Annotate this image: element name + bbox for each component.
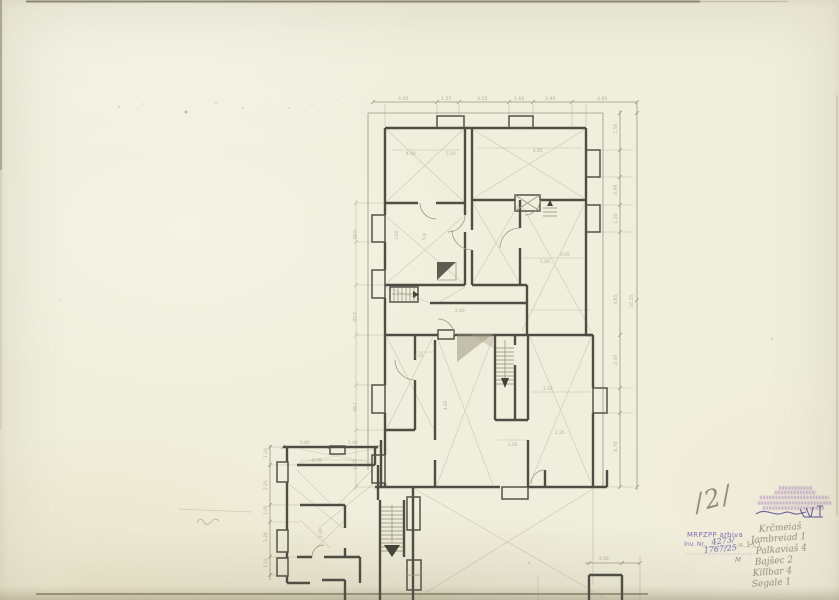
dim-label: 2.90 [613,185,619,195]
dim-label: 4.62 [443,400,449,410]
staircase-back [543,200,557,216]
dim-label: 2.35 [555,430,565,436]
archive-stamp-inv-label: Inv. Nr. [684,541,705,548]
staircase-small [390,287,419,302]
dim-label: 1.05 [508,442,518,448]
dim-label: 2.10 [351,312,357,322]
dim-label: 4.85 [597,96,607,102]
dim-label: 5.10 [446,151,456,157]
floor-plan-drawing: 4.40 1.55 3.55 1.60 2.90 4.85 1.50 2.90 … [0,0,839,600]
dim-label: 2.90 [545,96,555,102]
dim-label: 2.00 [599,556,609,562]
dim-label: 1.60 [514,96,524,102]
staircase-main [496,340,514,388]
folio-number: /2/ [689,479,737,518]
dim-label: 16.25 [629,295,635,308]
pencil-note-m: M [735,556,741,564]
dim-label: 1.20 [613,214,619,224]
dim-label: 1.40 [348,440,358,446]
handwritten-list: Krčmeiaš Jambreiad 1 Palkaviaš 4 Bajšec … [749,521,808,590]
dim-label: 3.05 [394,230,400,240]
dim-label: 0.95 [560,252,570,258]
dim-label: 4.40 [398,96,408,102]
window-bays-and-chimneys [277,116,607,590]
dim-label: 2.35 [613,355,619,365]
inv-number-handwritten-2: 1767/25 [703,543,737,555]
door-swings [312,200,545,557]
walls [283,128,622,600]
dim-label: 0.95 [351,230,357,240]
dim-label: 5.8 [422,233,428,240]
dim-label: 4.70 [613,442,619,452]
pencil-scribble [178,509,252,524]
scanned-paper-sheet: 4.40 1.55 3.55 1.60 2.90 4.85 1.50 2.90 … [0,0,839,600]
dim-label: 1.20 [540,259,550,265]
dim-label: 4.40 [406,151,416,157]
dim-label: 1.10 [263,448,269,458]
dim-label: 2.35 [351,460,357,470]
dim-label: 3.10 [543,386,553,392]
paper-specks [59,99,773,564]
dim-label: 2.05 [414,353,424,359]
dim-label: 3.85 [613,295,619,305]
staircase-extension [381,505,403,557]
dim-label: 1.15 [263,558,269,568]
dim-label: 2.60 [455,308,465,314]
dim-label: 2.25 [263,480,269,490]
dim-label: 2.80 [300,440,310,446]
dim-label: 3.55 [477,96,487,102]
dim-label: 1.90 [351,402,357,412]
dim-label: 2.20 [318,528,324,538]
archive-stamp: MRPZPP arhiva Inv. Nr. 4273∕ 1767/25 = 1… [684,531,761,564]
institution-stamp [756,488,831,517]
dim-label: 5.70 [312,458,322,464]
dim-label: 2.20 [263,532,269,542]
dim-label: 4.85 [533,148,543,154]
dim-label: 1.50 [613,124,619,134]
dim-label: 1.05 [263,505,269,515]
dim-label: 1.55 [441,96,451,102]
